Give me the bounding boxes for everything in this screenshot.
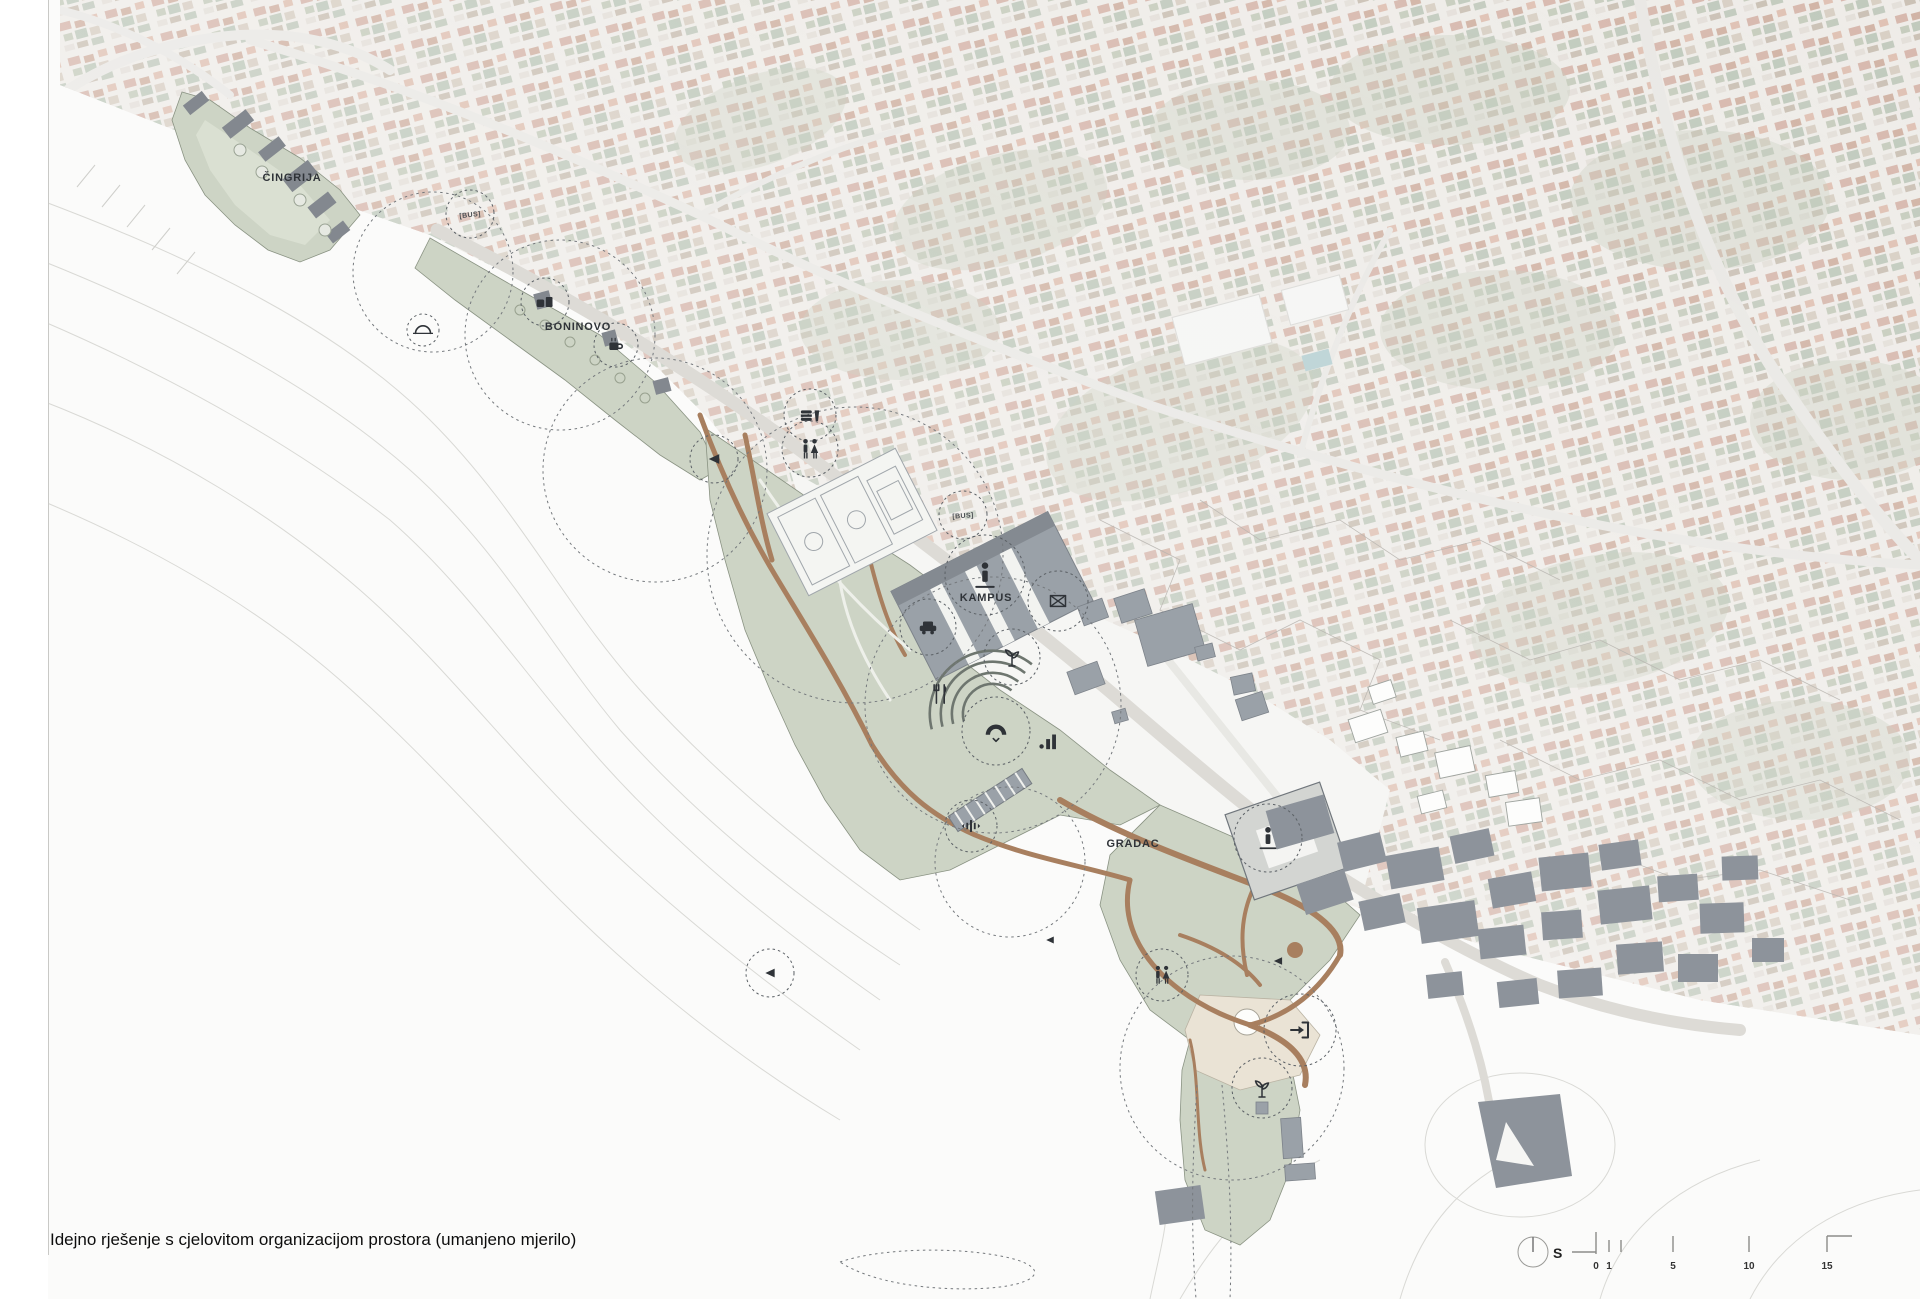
region-label-kampus: KAMPUS <box>960 592 1012 604</box>
scale-tick-10: 10 <box>1743 1261 1755 1272</box>
scale-tick-0: 0 <box>1593 1261 1599 1272</box>
food-icon <box>801 410 819 421</box>
bus-stop-label: [BUS] <box>952 512 974 520</box>
masterplan-sheet: ČINGRIJABONINOVOKAMPUSGRADAC [BUS][BUS] … <box>0 0 1920 1299</box>
left-rule <box>48 0 49 1255</box>
region-label-gradac: GRADAC <box>1106 838 1159 850</box>
north-label: S <box>1553 1245 1562 1261</box>
region-label-boninovo: BONINOVO <box>545 321 611 333</box>
scale-tick-5: 5 <box>1670 1261 1676 1272</box>
region-label-cingrija: ČINGRIJA <box>263 171 322 184</box>
scale-tick-15: 15 <box>1821 1261 1833 1272</box>
scale-tick-1: 1 <box>1606 1261 1612 1272</box>
left-margin <box>0 0 48 1299</box>
drawing-caption: Idejno rješenje s cjelovitom organizacij… <box>50 1230 576 1250</box>
site-plan-map: ČINGRIJABONINOVOKAMPUSGRADAC [BUS][BUS] … <box>0 0 1920 1299</box>
